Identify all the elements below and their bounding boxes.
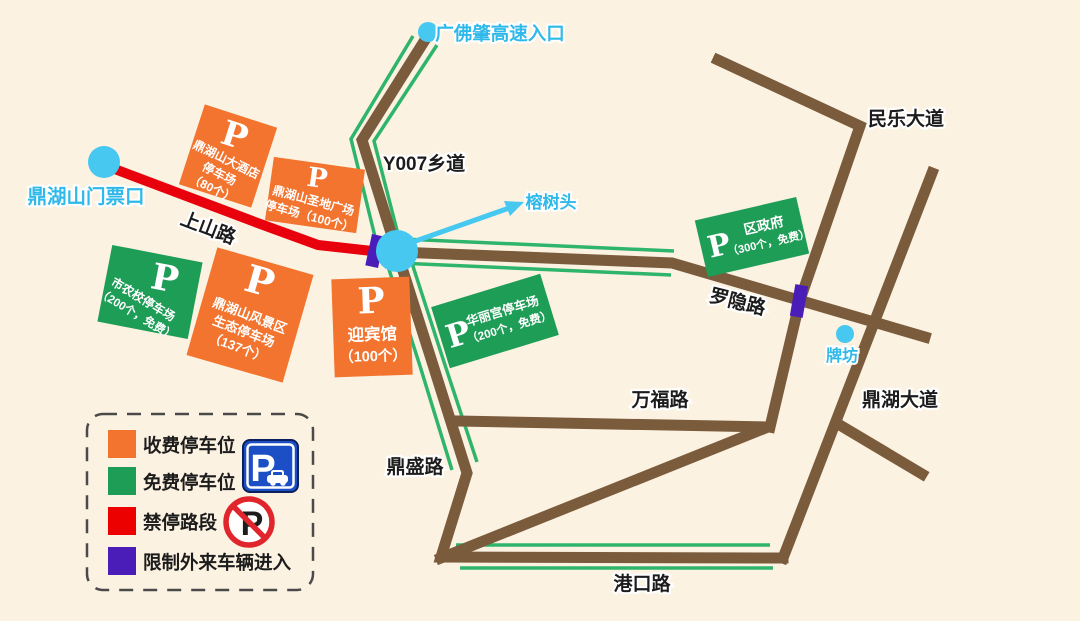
lot-shengdi-plaza-p-icon: P [305,162,329,196]
legend-label-restricted: 限制外来车辆进入 [143,552,292,573]
car-wheel-left [270,480,276,486]
road-label-wanfu: 万福路 [630,388,689,411]
parking-sign-icon: P [243,440,298,492]
parking-map: 鼎湖山门票口 广佛肇高速入口 榕树头 牌坊 上山路 Y007乡道 民乐大道 罗隐… [0,0,1080,621]
road-label-gangkou: 港口路 [613,572,671,595]
junction-dot [376,230,418,272]
banyan-tree-label: 榕树头 [526,192,577,212]
road-label-y007: Y007乡道 [383,152,465,175]
legend-swatch-restricted [108,547,136,575]
ticket-gate-dot [88,146,120,178]
lot-yingbinguan-line2: （100个） [339,346,407,366]
archway-label: 牌坊 [826,346,858,365]
road-label-dinghu-avenue: 鼎湖大道 [862,388,938,411]
no-parking-sign-icon: P [226,499,272,545]
road-wanfu [458,421,768,427]
archway-dot [836,325,854,343]
car-wheel-right [280,480,286,486]
lot-yingbinguan-line1: 迎宾馆 [347,323,397,345]
lot-yingbinguan-p-icon: P [357,280,386,323]
legend-swatch-paid [108,430,136,458]
road-label-dingsheng: 鼎盛路 [386,455,444,478]
highway-entrance-label: 广佛肇高速入口 [435,23,565,44]
map-canvas: 鼎湖山门票口 广佛肇高速入口 榕树头 牌坊 上山路 Y007乡道 民乐大道 罗隐… [0,0,1080,621]
lot-yingbinguan: P 迎宾馆 （100个） [331,277,412,378]
ticket-gate-label: 鼎湖山门票口 [27,185,144,208]
legend-label-no-stop: 禁停路段 [143,512,218,533]
legend-label-paid: 收费停车位 [143,435,236,456]
legend-swatch-free [108,467,136,495]
road-label-minle: 民乐大道 [868,107,944,130]
legend-swatch-no-stop [108,507,136,535]
legend-label-free: 免费停车位 [143,472,236,493]
